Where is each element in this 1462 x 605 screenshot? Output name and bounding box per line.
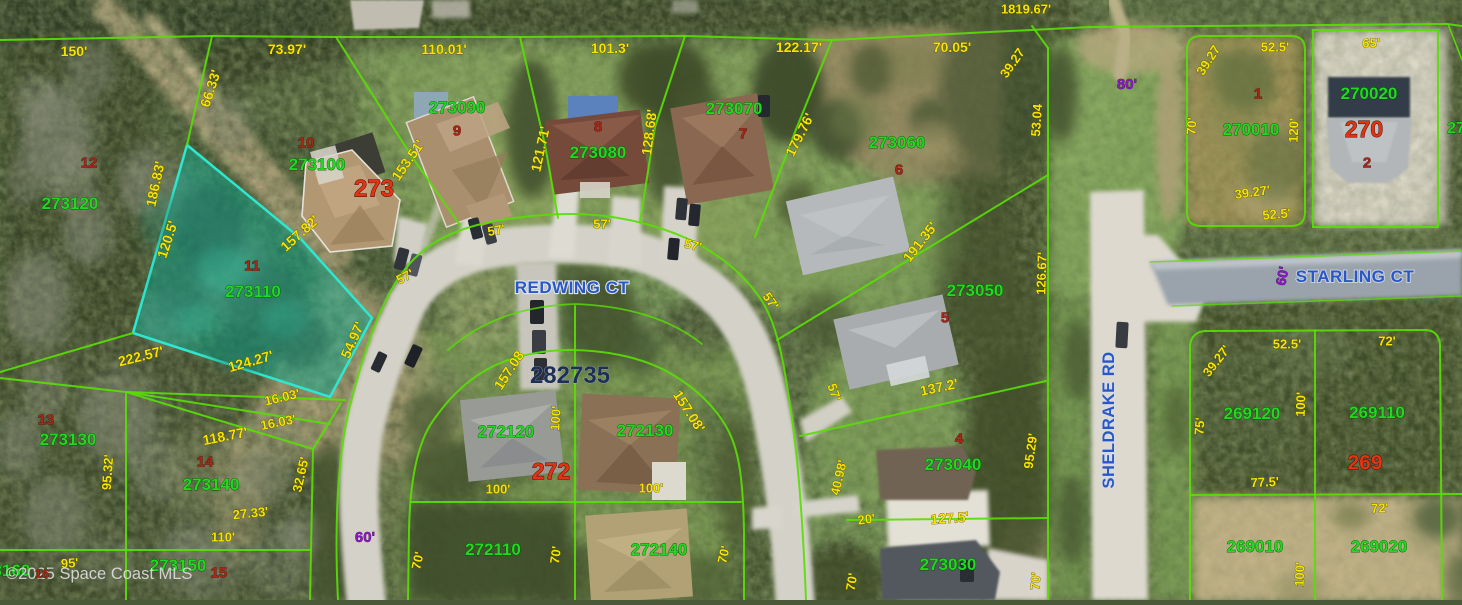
svg-text:126.67': 126.67' bbox=[1033, 252, 1049, 295]
svg-text:72': 72' bbox=[1378, 334, 1396, 349]
svg-text:110': 110' bbox=[211, 530, 235, 545]
svg-text:100': 100' bbox=[639, 481, 664, 496]
svg-text:5: 5 bbox=[941, 309, 949, 326]
svg-text:273120: 273120 bbox=[42, 194, 99, 213]
svg-text:52.5': 52.5' bbox=[1262, 205, 1292, 222]
svg-text:150': 150' bbox=[61, 43, 88, 59]
svg-text:101.3': 101.3' bbox=[591, 40, 629, 56]
svg-text:70': 70' bbox=[1027, 572, 1043, 591]
svg-text:100': 100' bbox=[547, 405, 564, 431]
svg-text:52.5': 52.5' bbox=[1261, 40, 1289, 55]
svg-text:STARLING CT: STARLING CT bbox=[1296, 267, 1415, 286]
svg-text:273130: 273130 bbox=[40, 430, 97, 449]
svg-text:273100: 273100 bbox=[289, 155, 346, 174]
svg-text:100': 100' bbox=[486, 482, 511, 497]
svg-text:272110: 272110 bbox=[465, 540, 521, 559]
svg-text:16: 16 bbox=[35, 566, 49, 581]
svg-text:57': 57' bbox=[593, 217, 611, 232]
svg-text:273110: 273110 bbox=[225, 282, 281, 301]
svg-text:273060: 273060 bbox=[869, 133, 926, 152]
svg-text:272120: 272120 bbox=[478, 422, 535, 441]
svg-text:269120: 269120 bbox=[1224, 404, 1281, 423]
svg-text:60': 60' bbox=[355, 529, 375, 546]
svg-text:10: 10 bbox=[298, 134, 315, 151]
svg-text:273: 273 bbox=[354, 175, 394, 202]
svg-text:20': 20' bbox=[857, 510, 876, 527]
svg-text:SHELDRAKE RD: SHELDRAKE RD bbox=[1100, 351, 1118, 488]
svg-text:70': 70' bbox=[547, 545, 564, 564]
svg-text:282735: 282735 bbox=[530, 362, 610, 389]
svg-text:100': 100' bbox=[1292, 562, 1308, 587]
svg-text:8: 8 bbox=[594, 118, 602, 135]
svg-text:75': 75' bbox=[1191, 417, 1207, 436]
svg-text:110.01': 110.01' bbox=[421, 41, 466, 57]
svg-text:52.5': 52.5' bbox=[1273, 337, 1301, 352]
svg-text:122.17': 122.17' bbox=[776, 39, 822, 55]
svg-text:269110: 269110 bbox=[1349, 403, 1405, 422]
svg-text:269: 269 bbox=[1347, 451, 1382, 474]
svg-text:269020: 269020 bbox=[1351, 537, 1408, 556]
svg-text:6: 6 bbox=[895, 161, 903, 178]
svg-text:272: 272 bbox=[532, 458, 570, 484]
svg-text:273090: 273090 bbox=[429, 98, 486, 117]
svg-text:272130: 272130 bbox=[617, 421, 674, 440]
svg-text:127.5': 127.5' bbox=[930, 509, 969, 528]
svg-text:273070: 273070 bbox=[706, 99, 763, 118]
svg-text:65': 65' bbox=[1362, 36, 1380, 51]
svg-text:53.04: 53.04 bbox=[1028, 103, 1045, 137]
svg-text:270020: 270020 bbox=[1341, 84, 1398, 103]
svg-text:272140: 272140 bbox=[631, 540, 688, 559]
svg-text:13: 13 bbox=[38, 411, 55, 428]
svg-text:72': 72' bbox=[1371, 500, 1389, 516]
svg-text:100': 100' bbox=[1293, 392, 1309, 417]
svg-text:2: 2 bbox=[1363, 154, 1371, 171]
svg-text:15: 15 bbox=[211, 564, 228, 581]
svg-text:270: 270 bbox=[1345, 116, 1383, 142]
svg-text:27: 27 bbox=[1447, 120, 1462, 137]
svg-text:73.97': 73.97' bbox=[268, 41, 306, 57]
svg-text:REDWING CT: REDWING CT bbox=[515, 278, 630, 297]
svg-text:77.5': 77.5' bbox=[1250, 474, 1279, 490]
svg-text:273040: 273040 bbox=[925, 455, 982, 474]
svg-text:95.32': 95.32' bbox=[99, 454, 116, 491]
svg-text:4: 4 bbox=[955, 430, 964, 447]
svg-text:70': 70' bbox=[1183, 117, 1199, 136]
svg-text:14: 14 bbox=[197, 453, 214, 470]
svg-text:80': 80' bbox=[1117, 76, 1137, 93]
svg-text:269010: 269010 bbox=[1227, 537, 1284, 556]
svg-text:70.05': 70.05' bbox=[933, 39, 971, 55]
svg-text:1: 1 bbox=[1254, 85, 1262, 102]
svg-text:273080: 273080 bbox=[570, 143, 627, 162]
svg-text:70': 70' bbox=[843, 572, 861, 592]
svg-text:273140: 273140 bbox=[183, 475, 240, 494]
svg-text:270010: 270010 bbox=[1223, 120, 1280, 139]
svg-text:1819.67': 1819.67' bbox=[1001, 2, 1051, 17]
svg-text:9: 9 bbox=[453, 122, 461, 139]
svg-text:273030: 273030 bbox=[920, 555, 977, 574]
svg-text:7: 7 bbox=[739, 125, 747, 142]
svg-text:12: 12 bbox=[81, 154, 98, 171]
svg-text:57': 57' bbox=[486, 221, 506, 239]
svg-text:11: 11 bbox=[244, 257, 260, 274]
svg-text:120': 120' bbox=[1286, 118, 1302, 143]
svg-text:273050: 273050 bbox=[947, 281, 1004, 300]
